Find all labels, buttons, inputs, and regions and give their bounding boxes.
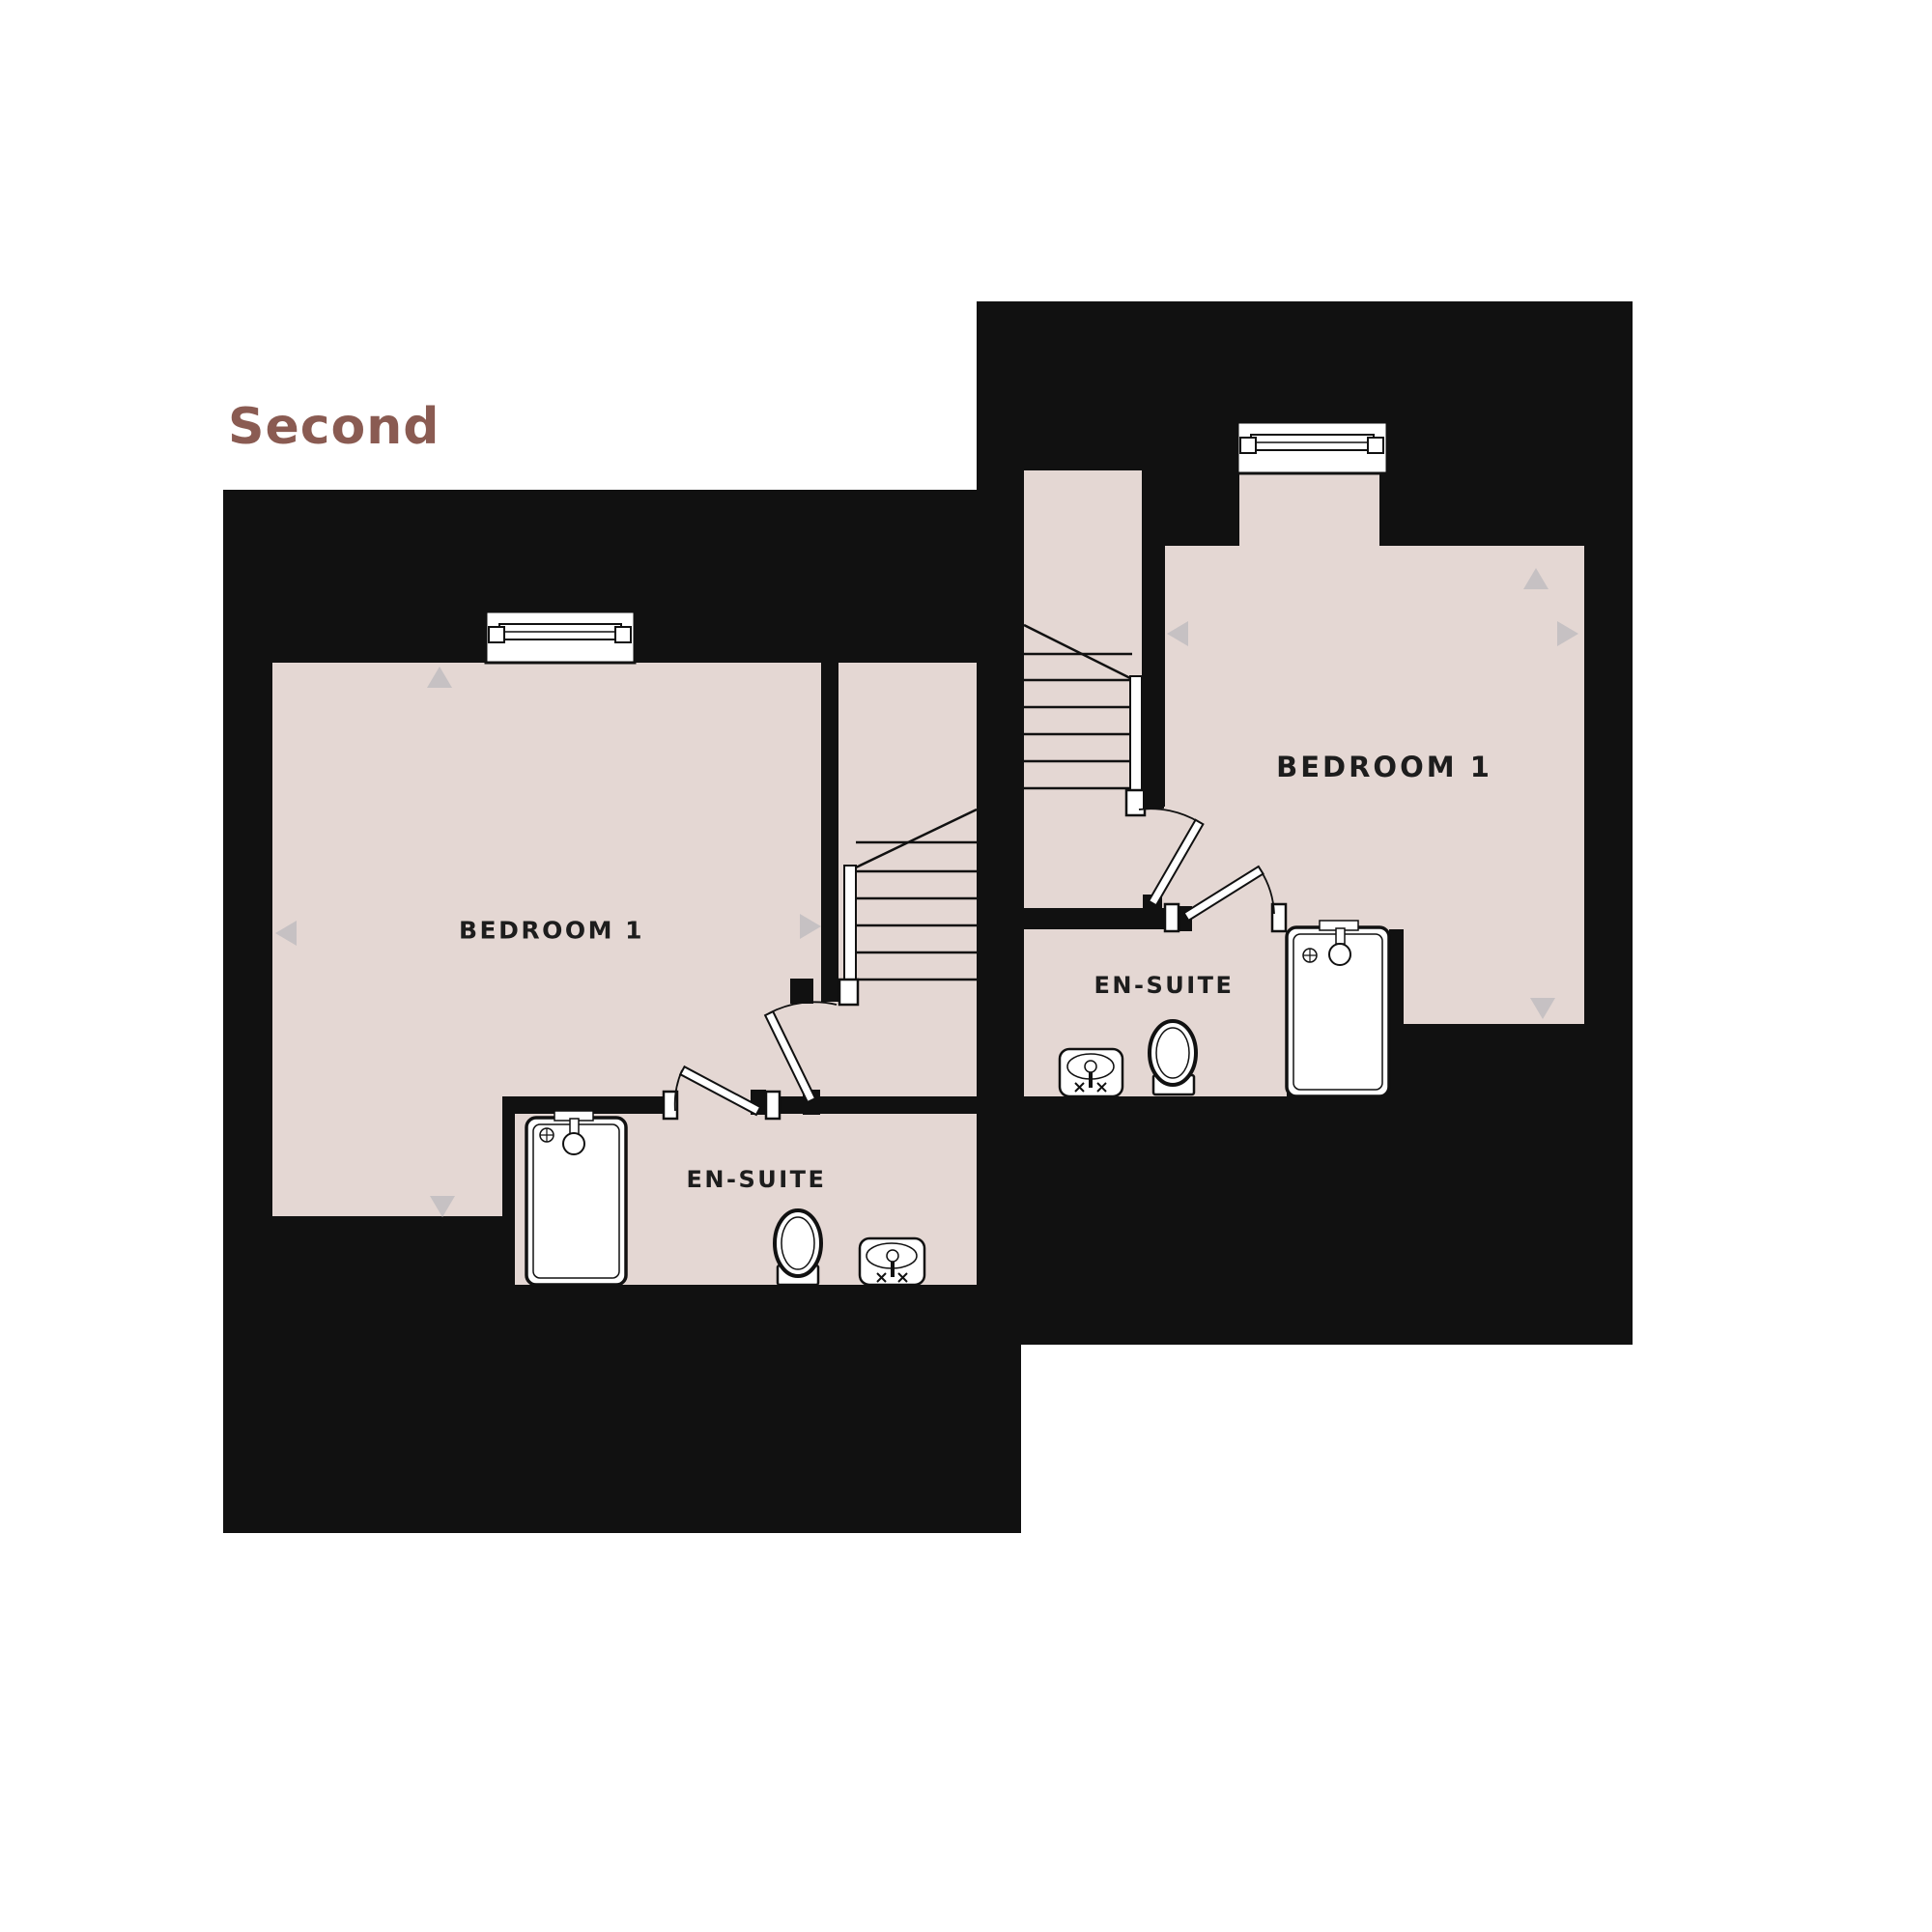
right-unit bbox=[977, 301, 1633, 1345]
left-ensuite-label: EN-SUITE bbox=[687, 1166, 827, 1193]
right-bath-wall bbox=[1389, 929, 1404, 1026]
left-bedroom-floor-lower bbox=[272, 1096, 502, 1216]
right-stair-railing bbox=[1130, 676, 1142, 792]
left-window-cap-right bbox=[615, 627, 631, 642]
left-bedroom-floor bbox=[272, 663, 821, 1096]
left-bath bbox=[526, 1111, 626, 1285]
left-stair-jamb bbox=[839, 980, 858, 1005]
right-stairwell-floor bbox=[1024, 470, 1142, 908]
right-stair-jamb bbox=[1126, 790, 1145, 815]
left-window-cap-left bbox=[489, 627, 504, 642]
right-window-cap-right bbox=[1368, 438, 1383, 453]
right-ensuite-label: EN-SUITE bbox=[1094, 972, 1235, 999]
right-bedroom-label: BEDROOM 1 bbox=[1276, 751, 1492, 783]
right-bedroom-window-bay bbox=[1239, 470, 1379, 546]
left-toilet bbox=[775, 1210, 821, 1285]
left-shower-head-icon bbox=[563, 1133, 584, 1154]
floorplan-drawing bbox=[0, 0, 1932, 1932]
right-window bbox=[1237, 422, 1387, 473]
left-stair-railing bbox=[844, 866, 856, 981]
left-window bbox=[486, 611, 635, 663]
right-toilet bbox=[1150, 1021, 1196, 1094]
left-bedroom-label: BEDROOM 1 bbox=[459, 917, 644, 945]
right-shower-head-icon bbox=[1329, 944, 1350, 965]
left-stair-door-opening bbox=[821, 1002, 838, 1096]
left-unit bbox=[223, 490, 1021, 1533]
right-bath bbox=[1287, 921, 1389, 1096]
floorplan-page: Second bbox=[0, 0, 1932, 1932]
right-sink bbox=[1060, 1049, 1122, 1096]
left-stairwell-floor bbox=[838, 663, 977, 1096]
right-window-cap-left bbox=[1240, 438, 1256, 453]
left-sink bbox=[860, 1238, 924, 1285]
